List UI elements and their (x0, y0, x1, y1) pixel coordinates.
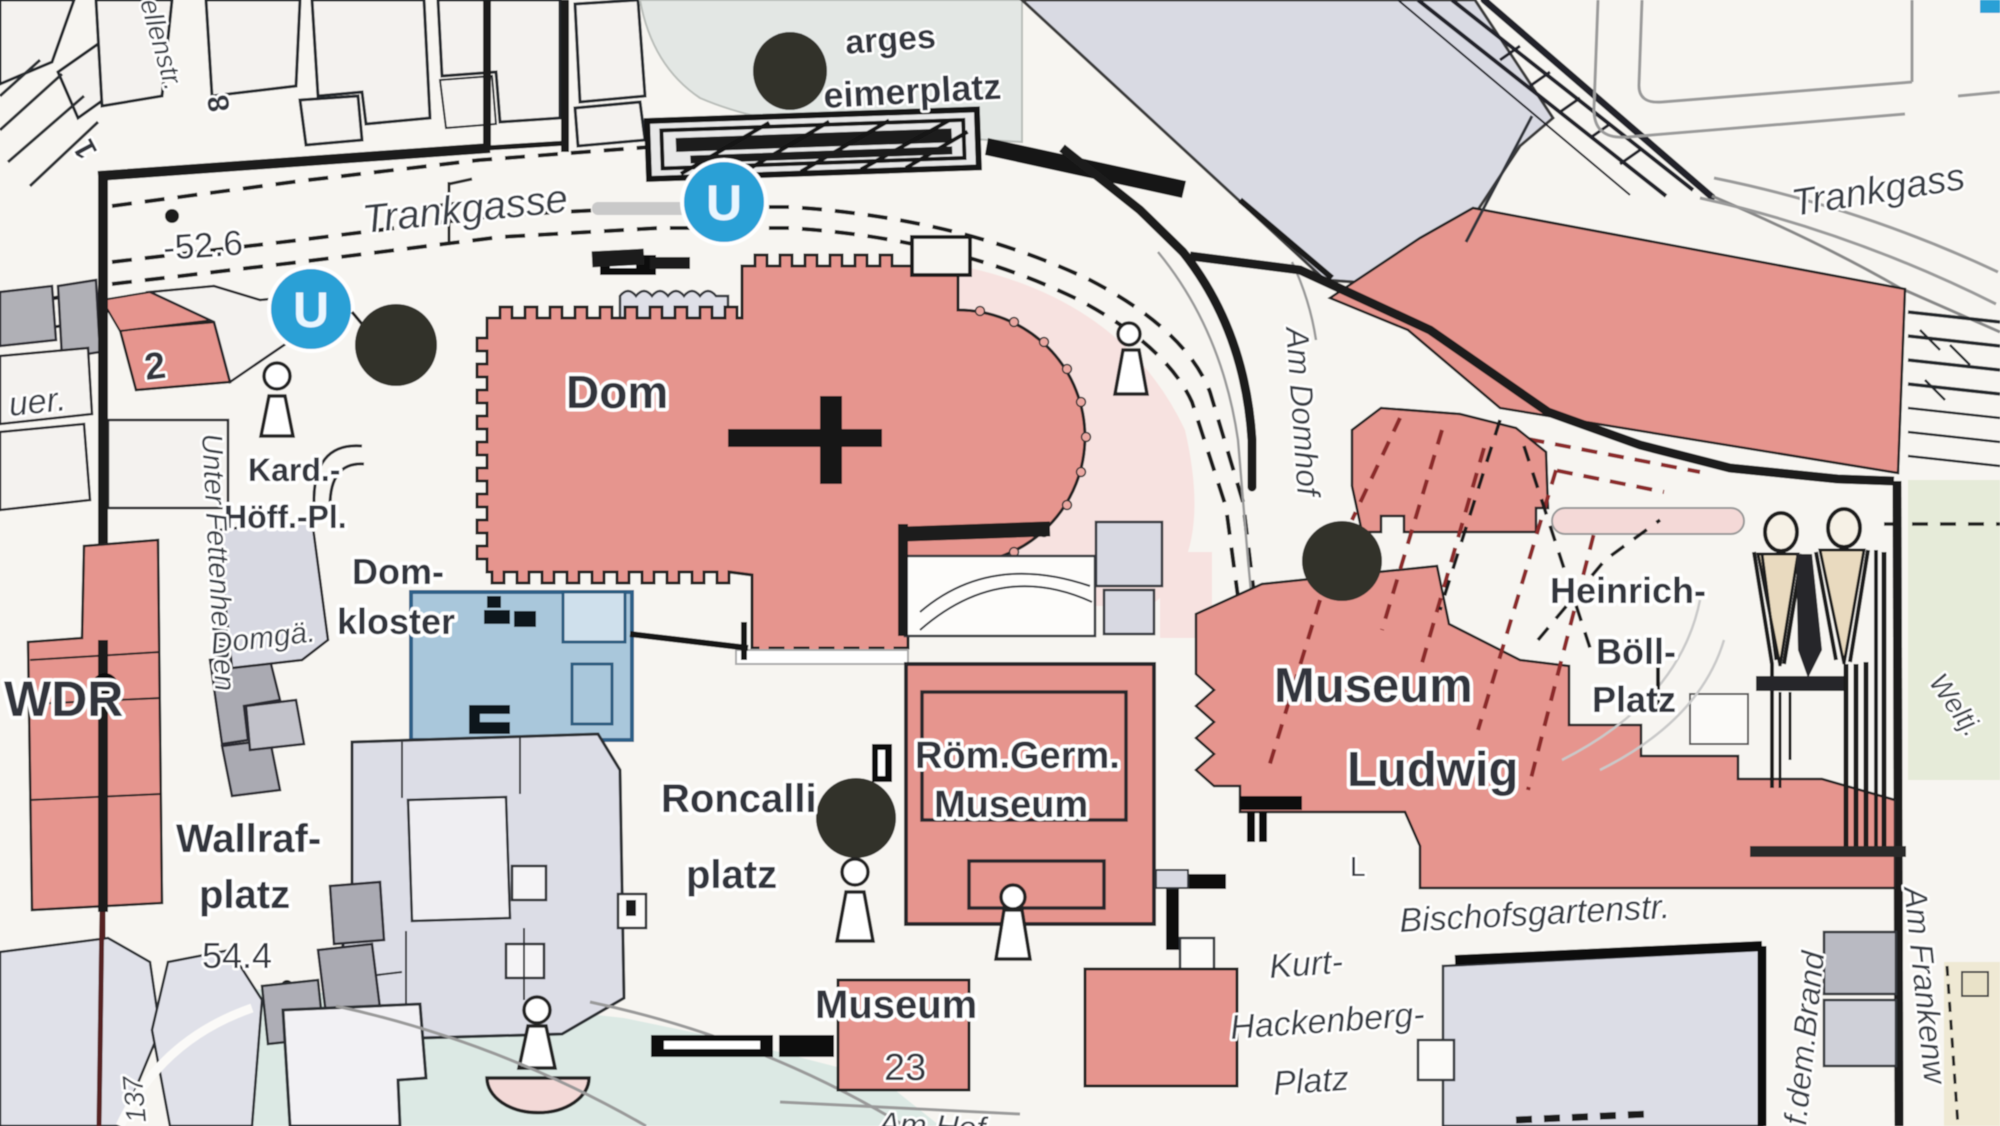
svg-text:137: 137 (117, 1074, 152, 1125)
svg-text:Museum: Museum (934, 784, 1088, 826)
svg-text:platz: platz (686, 853, 777, 897)
svg-text:arges: arges (844, 18, 937, 62)
svg-text:U: U (293, 282, 329, 338)
svg-text:WDR: WDR (4, 671, 123, 727)
svg-text:Museum: Museum (815, 983, 977, 1027)
svg-text:Platz: Platz (1592, 679, 1676, 720)
svg-text:kloster: kloster (337, 601, 455, 642)
svg-text:platz: platz (199, 873, 290, 917)
svg-text:Ludwig: Ludwig (1347, 743, 1518, 797)
svg-text:54.4: 54.4 (202, 935, 272, 976)
svg-text:Kard.-: Kard.- (248, 452, 340, 488)
svg-text:Dom: Dom (566, 366, 668, 418)
svg-text:U: U (706, 175, 742, 231)
svg-text:Heinrich-: Heinrich- (1550, 570, 1706, 611)
svg-text:Museum: Museum (1274, 659, 1473, 713)
svg-text:Röm.Germ.: Röm.Germ. (915, 735, 1120, 777)
svg-text:Kurt-: Kurt- (1268, 943, 1344, 986)
svg-text:Höff.-Pl.: Höff.-Pl. (224, 499, 347, 535)
svg-text:L: L (1350, 851, 1366, 882)
svg-text:Roncalli: Roncalli (661, 777, 817, 821)
svg-text:23: 23 (884, 1047, 926, 1089)
svg-text:Dom-: Dom- (352, 551, 444, 592)
svg-text:-52.6: -52.6 (162, 224, 244, 268)
svg-text:Wallraf-: Wallraf- (176, 817, 321, 861)
svg-text:Böll-: Böll- (1596, 631, 1676, 672)
svg-text:Platz: Platz (1272, 1060, 1350, 1103)
svg-text:uer.: uer. (7, 380, 68, 424)
